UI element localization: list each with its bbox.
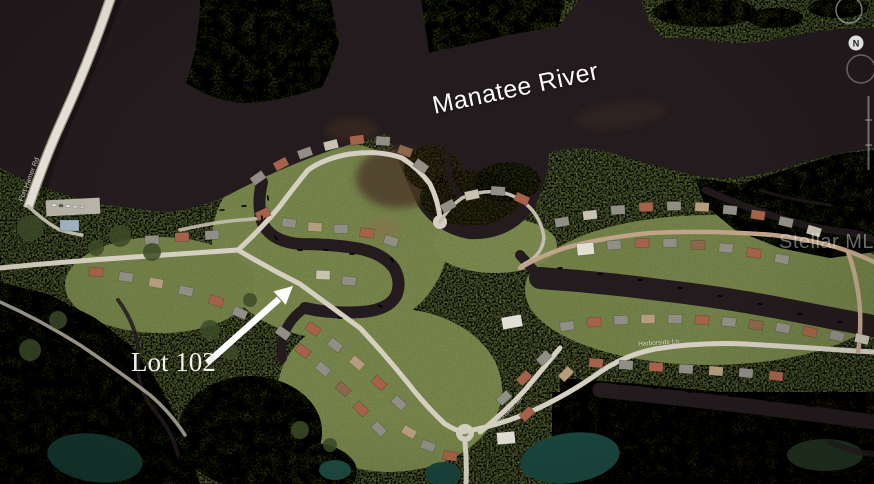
north-label: N <box>853 39 860 49</box>
map-canvas[interactable]: N Manatee River Lot 102 Stellar MLS Fort… <box>0 0 874 484</box>
satellite-imagery: N <box>0 0 874 484</box>
